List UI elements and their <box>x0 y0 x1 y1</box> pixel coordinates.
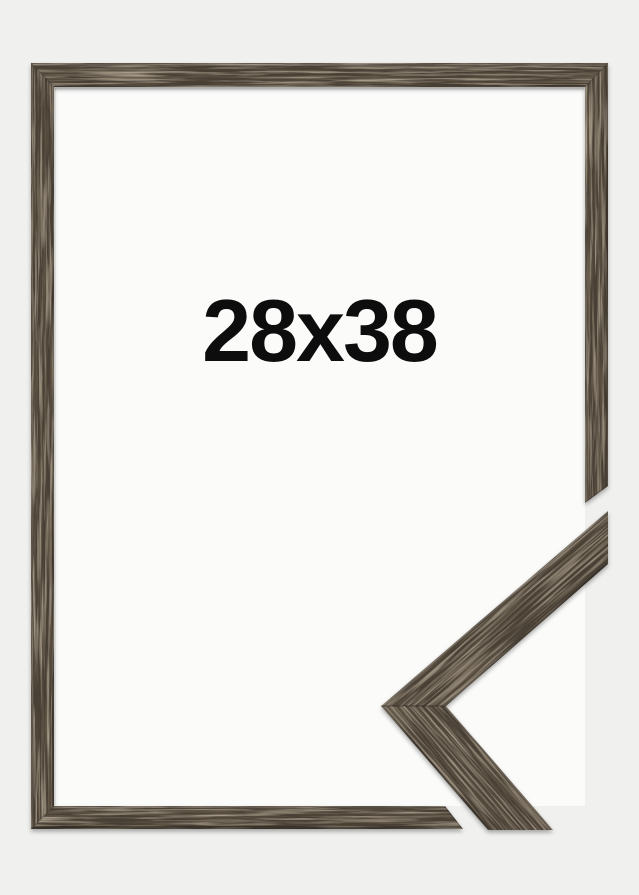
size-label: 28x38 <box>54 287 585 375</box>
frame-illustration <box>0 0 639 895</box>
frame-opening <box>54 87 585 806</box>
product-image: 28x38 <box>0 0 639 895</box>
